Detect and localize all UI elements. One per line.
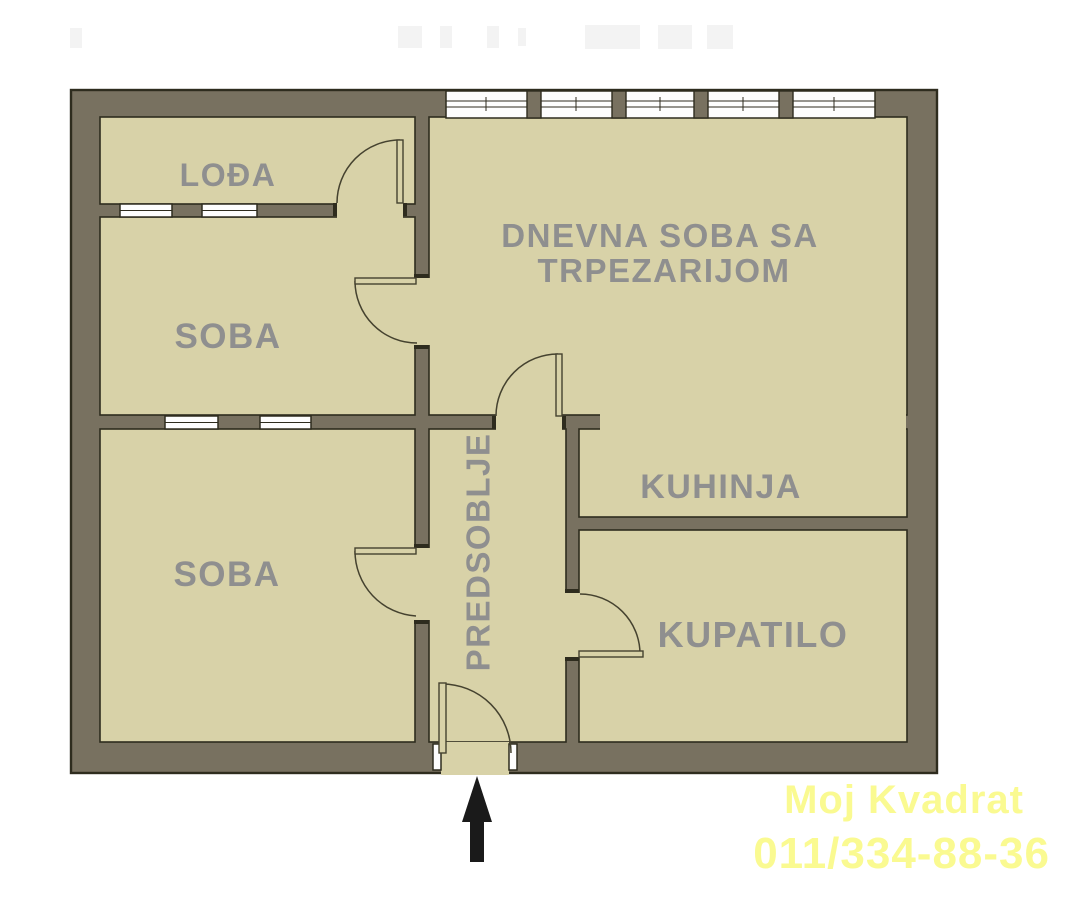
bathroom-door-opening: [564, 593, 581, 657]
faded-watermark-artifacts: [70, 25, 733, 49]
entrance-opening: [441, 742, 509, 775]
room-floor-predsoblje: [429, 429, 566, 742]
facade-window-band: [446, 91, 875, 118]
agency-watermark: Moj Kvadrat 011/334-88-36: [753, 778, 1050, 878]
room-label-loda: LOĐA: [180, 157, 277, 193]
top-room-door-opening: [413, 278, 431, 345]
window-mullion: [527, 91, 541, 118]
living-kitchen-open-passage: [600, 413, 906, 431]
room-label-kuhinja: KUHINJA: [640, 468, 802, 506]
room-label-soba-top: SOBA: [174, 317, 281, 356]
watermark-phone: 011/334-88-36: [753, 829, 1050, 878]
window-mullion: [694, 91, 708, 118]
room-floor-soba-top: [100, 217, 415, 415]
living-room-door-opening: [496, 413, 562, 431]
window-mullion: [779, 91, 793, 118]
window-mullion: [612, 91, 626, 118]
room-label-predsoblje: PREDSOBLJE: [460, 433, 497, 672]
room-label-kupatilo: KUPATILO: [658, 614, 849, 655]
room-label-soba-bottom: SOBA: [173, 555, 280, 594]
room-label-dnevna-line2: TRPEZARIJOM: [537, 252, 790, 289]
floor-plan-page: LOĐA SOBA DNEVNA SOBA SA TRPEZARIJOM SOB…: [0, 0, 1084, 900]
entrance-arrow-icon: [462, 776, 492, 862]
loggia-door-opening: [337, 202, 403, 218]
bottom-room-door-opening: [413, 548, 431, 620]
room-label-dnevna-line1: DNEVNA SOBA SA: [501, 217, 818, 254]
watermark-name: Moj Kvadrat: [784, 778, 1024, 822]
floor-plan-drawing: LOĐA SOBA DNEVNA SOBA SA TRPEZARIJOM SOB…: [0, 0, 1084, 900]
